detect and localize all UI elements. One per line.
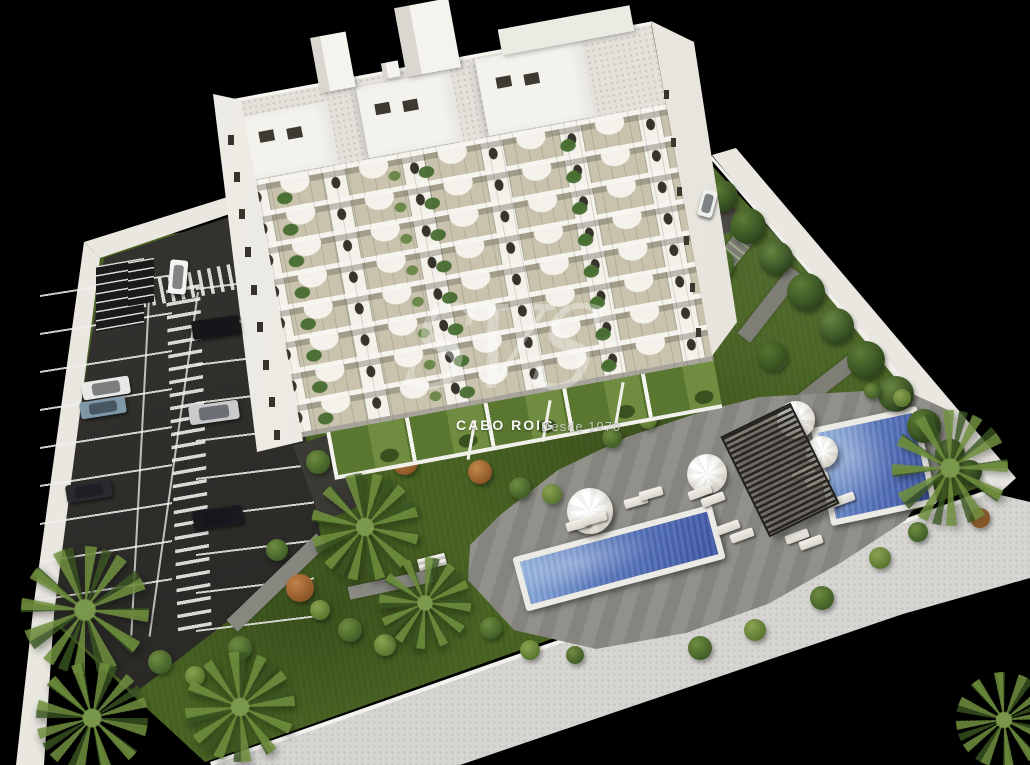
bush-orange xyxy=(286,574,314,602)
render-scene: SVS CABO ROIG Desde 1970 xyxy=(0,0,1030,765)
bush-orange xyxy=(468,460,492,484)
round-tree xyxy=(757,341,787,371)
roof-stair-tower xyxy=(394,0,461,77)
gable-windows xyxy=(228,135,234,145)
bush xyxy=(374,634,396,656)
watermark-tagline: Desde 1970 xyxy=(541,419,621,434)
hedge-bush xyxy=(818,308,854,344)
motorbike-stalls xyxy=(128,258,154,307)
roof-chimney xyxy=(381,60,401,79)
bush xyxy=(310,600,330,620)
bush xyxy=(864,383,880,399)
bush xyxy=(148,650,172,674)
bush xyxy=(338,618,362,642)
bush xyxy=(266,539,288,561)
car-white xyxy=(168,259,189,294)
bush xyxy=(810,586,834,610)
bush xyxy=(908,522,928,542)
bush xyxy=(744,619,766,641)
hedge-bush xyxy=(847,341,885,379)
gable-windows xyxy=(664,90,669,99)
hedge-bush xyxy=(759,241,793,275)
hedge-bush xyxy=(787,273,825,311)
bush xyxy=(480,617,502,639)
bush xyxy=(542,484,562,504)
bush xyxy=(893,389,911,407)
bush xyxy=(306,450,330,474)
bush xyxy=(509,477,531,499)
bush xyxy=(869,547,891,569)
hedge-bush xyxy=(730,208,766,244)
palm-tree xyxy=(936,652,1030,765)
bush xyxy=(688,636,712,660)
watermark-logo: SVS xyxy=(397,292,607,407)
bush xyxy=(566,646,584,664)
bush xyxy=(520,640,540,660)
